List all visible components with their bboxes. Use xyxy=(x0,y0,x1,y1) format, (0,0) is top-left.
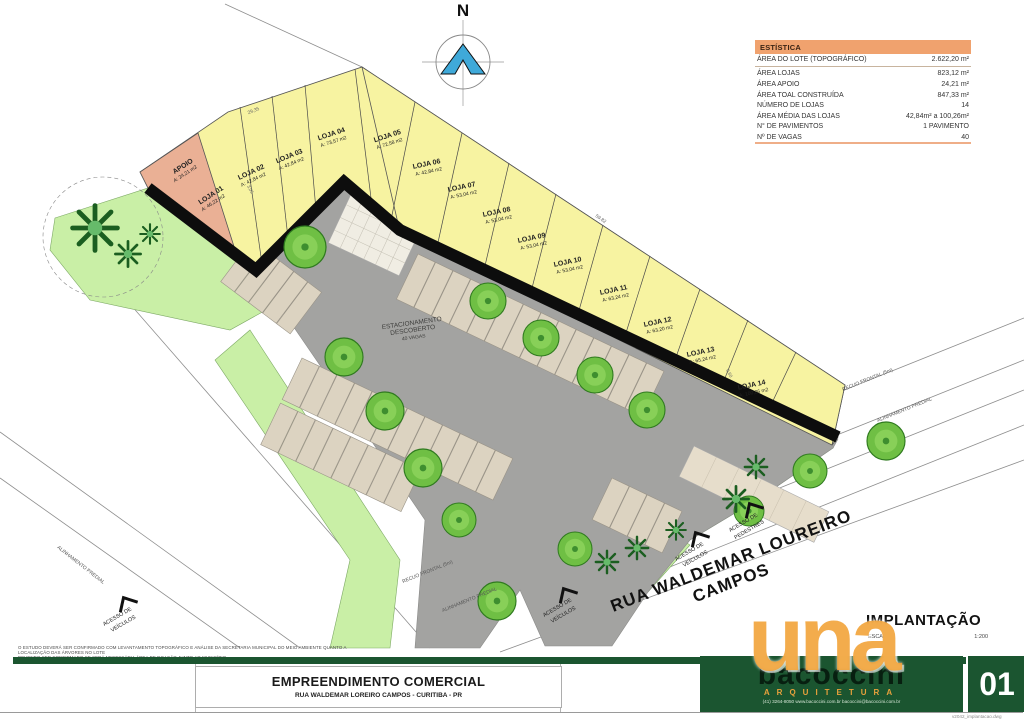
sheet-number-box: 01 xyxy=(966,656,1024,712)
stats-title: ESTÍSTICA xyxy=(755,40,971,54)
stat-label: ÁREA LOJAS xyxy=(757,70,800,77)
project-title-box: EMPREENDIMENTO COMERCIAL RUA WALDEMAR LO… xyxy=(195,666,562,708)
svg-text:RECUO FRONTAL (5m): RECUO FRONTAL (5m) xyxy=(842,367,895,393)
stat-value: 40 xyxy=(961,134,969,141)
project-address: RUA WALDEMAR LOREIRO CAMPOS - CURITIBA -… xyxy=(196,692,561,699)
scale-value: 1:200 xyxy=(974,634,988,640)
svg-text:ALINHAMENTO PREDIAL: ALINHAMENTO PREDIAL xyxy=(876,396,933,424)
stat-value: 14 xyxy=(961,102,969,109)
stats-row: ÁREA LOJAS 823,12 m² xyxy=(755,68,971,79)
stat-value: 24,21 m² xyxy=(941,81,969,88)
stats-row: Nº DE VAGAS 40 xyxy=(755,132,971,143)
stat-label: ÁREA MÉDIA DAS LOJAS xyxy=(757,113,840,120)
stat-value: 1 PAVIMENTO xyxy=(923,123,969,130)
stat-label: ÁREA APOIO xyxy=(757,81,799,88)
stat-value: 823,12 m² xyxy=(937,70,969,77)
stat-label: ÁREA TOAL CONSTRUÍDA xyxy=(757,92,844,99)
north-label: N xyxy=(457,1,469,20)
north-arrow: N xyxy=(422,1,504,106)
stat-value: 42,84m² a 100,26m² xyxy=(906,113,969,120)
stats-table: ESTÍSTICA ÁREA DO LOTE (TOPOGRÁFICO) 2.6… xyxy=(755,40,971,144)
site-plan-sheet: N APOIO A: 24,21 m2 LOJA 01 A: 46,22 m2 … xyxy=(0,0,1024,724)
stats-row: ÁREA DO LOTE (TOPOGRÁFICO) 2.622,20 m² xyxy=(755,54,971,67)
stat-label: NÚMERO DE LOJAS xyxy=(757,102,824,109)
stat-label: N° DE PAVIMENTOS xyxy=(757,123,823,130)
stats-row: ÁREA APOIO 24,21 m² xyxy=(755,79,971,90)
stat-label: Nº DE VAGAS xyxy=(757,134,802,141)
stat-value: 2.622,20 m² xyxy=(932,56,969,63)
stat-value: 847,33 m² xyxy=(937,92,969,99)
project-title: EMPREENDIMENTO COMERCIAL xyxy=(196,674,561,689)
file-reference: v2042_implantacao.dwg xyxy=(952,714,1002,719)
stats-row: ÁREA MÉDIA DAS LOJAS 42,84m² a 100,26m² xyxy=(755,111,971,122)
sheet-number: 01 xyxy=(979,666,1015,703)
stats-row: NÚMERO DE LOJAS 14 xyxy=(755,100,971,111)
svg-text:ALINHAMENTO PREDIAL: ALINHAMENTO PREDIAL xyxy=(56,545,106,586)
una-watermark-logo: una xyxy=(748,596,897,682)
firm-contact: (41) 3264-8050 www.bacoccini.com.br baco… xyxy=(700,699,963,704)
stats-row: ÁREA TOAL CONSTRUÍDA 847,33 m² xyxy=(755,89,971,100)
note-line: O ESTUDO DEVERÁ SER CONFIRMADO COM LEVAN… xyxy=(18,645,358,655)
stat-label: ÁREA DO LOTE (TOPOGRÁFICO) xyxy=(757,56,867,63)
stats-row: N° DE PAVIMENTOS 1 PAVIMENTO xyxy=(755,121,971,132)
access-vehicles-1: ACESSO DE VEÍCULOS xyxy=(102,593,138,634)
